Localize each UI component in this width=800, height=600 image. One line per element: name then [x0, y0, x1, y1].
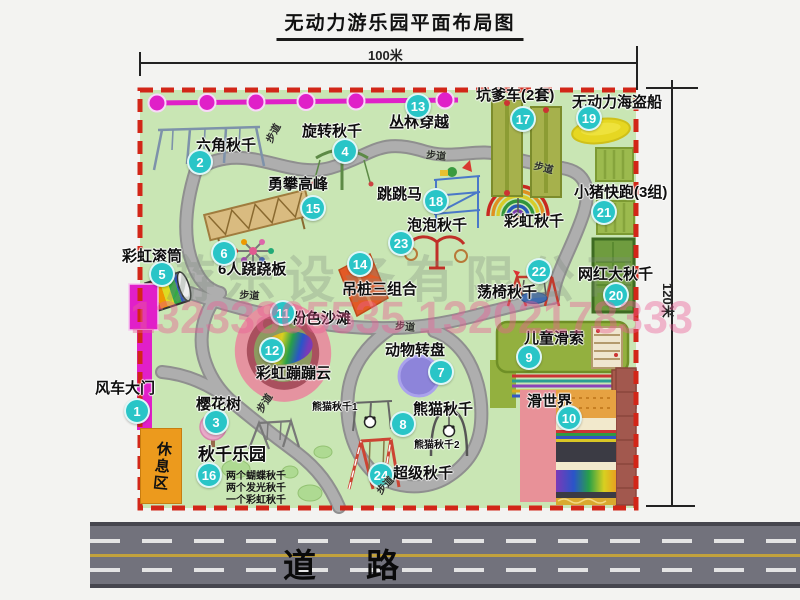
- animal-turntable-icon: [399, 356, 439, 396]
- road-label: 道路: [283, 539, 449, 587]
- phone-watermark: 13233805535 13202178333: [130, 292, 693, 344]
- park-plan-canvas: 无动力游乐园平面布局图 100米 120米: [0, 0, 800, 600]
- rest-area-zone: 休息区: [140, 428, 182, 504]
- rest-area-label: 休息区: [148, 440, 174, 493]
- road: 道路: [90, 522, 800, 588]
